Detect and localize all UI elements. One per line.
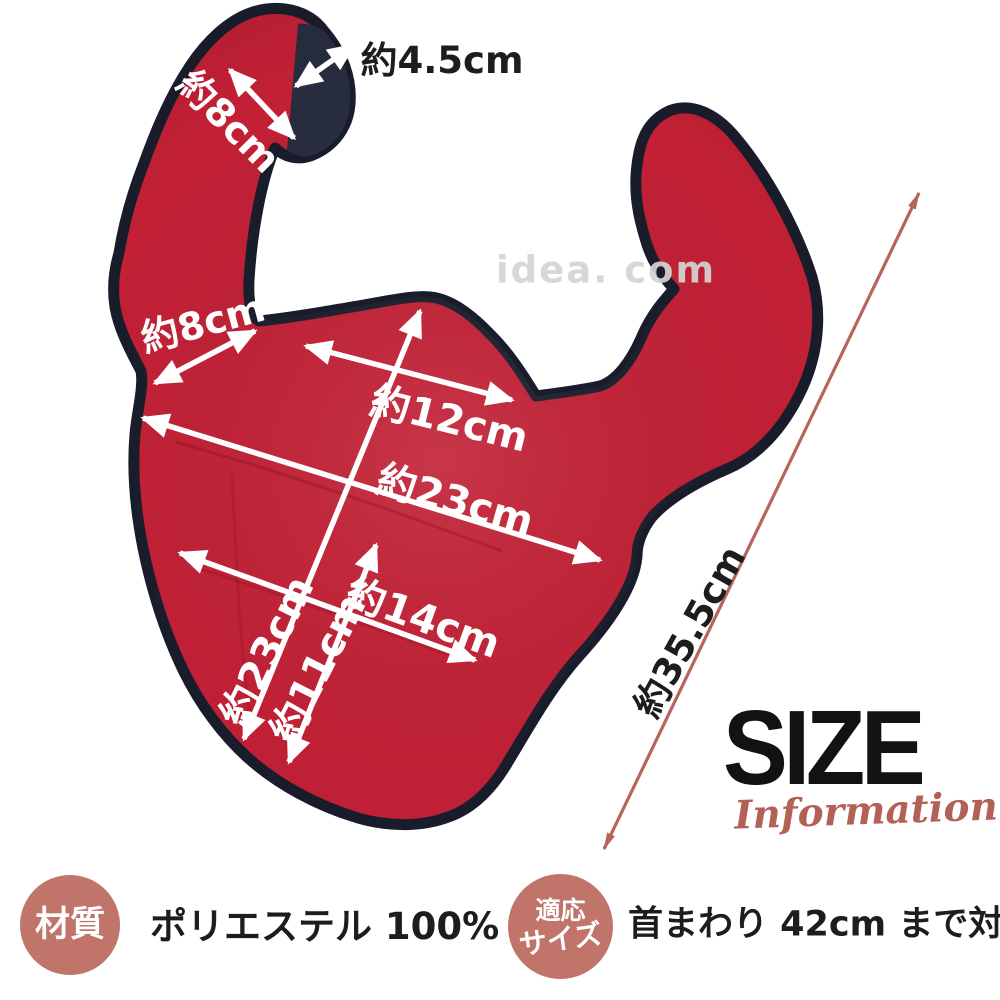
- watermark: idea. com: [496, 249, 716, 292]
- label-velcro-width: 約4.5cm: [360, 30, 523, 84]
- fit-size-value: 首まわり 42cm まで対応: [628, 895, 1000, 946]
- size-info-graphic: idea. com 約4.5cm 約8cm 約8cm 約12cm 約23cm 約…: [0, 0, 1000, 1000]
- page-title: SIZE: [723, 695, 921, 801]
- material-value: ポリエステル 100%: [150, 896, 499, 950]
- fit-size-badge: 適応 サイズ: [508, 874, 613, 979]
- material-badge-label: 材質: [35, 906, 105, 945]
- material-badge: 材質: [20, 875, 120, 975]
- page-subtitle: Information: [733, 783, 998, 838]
- fit-badge-line2: サイズ: [517, 920, 604, 962]
